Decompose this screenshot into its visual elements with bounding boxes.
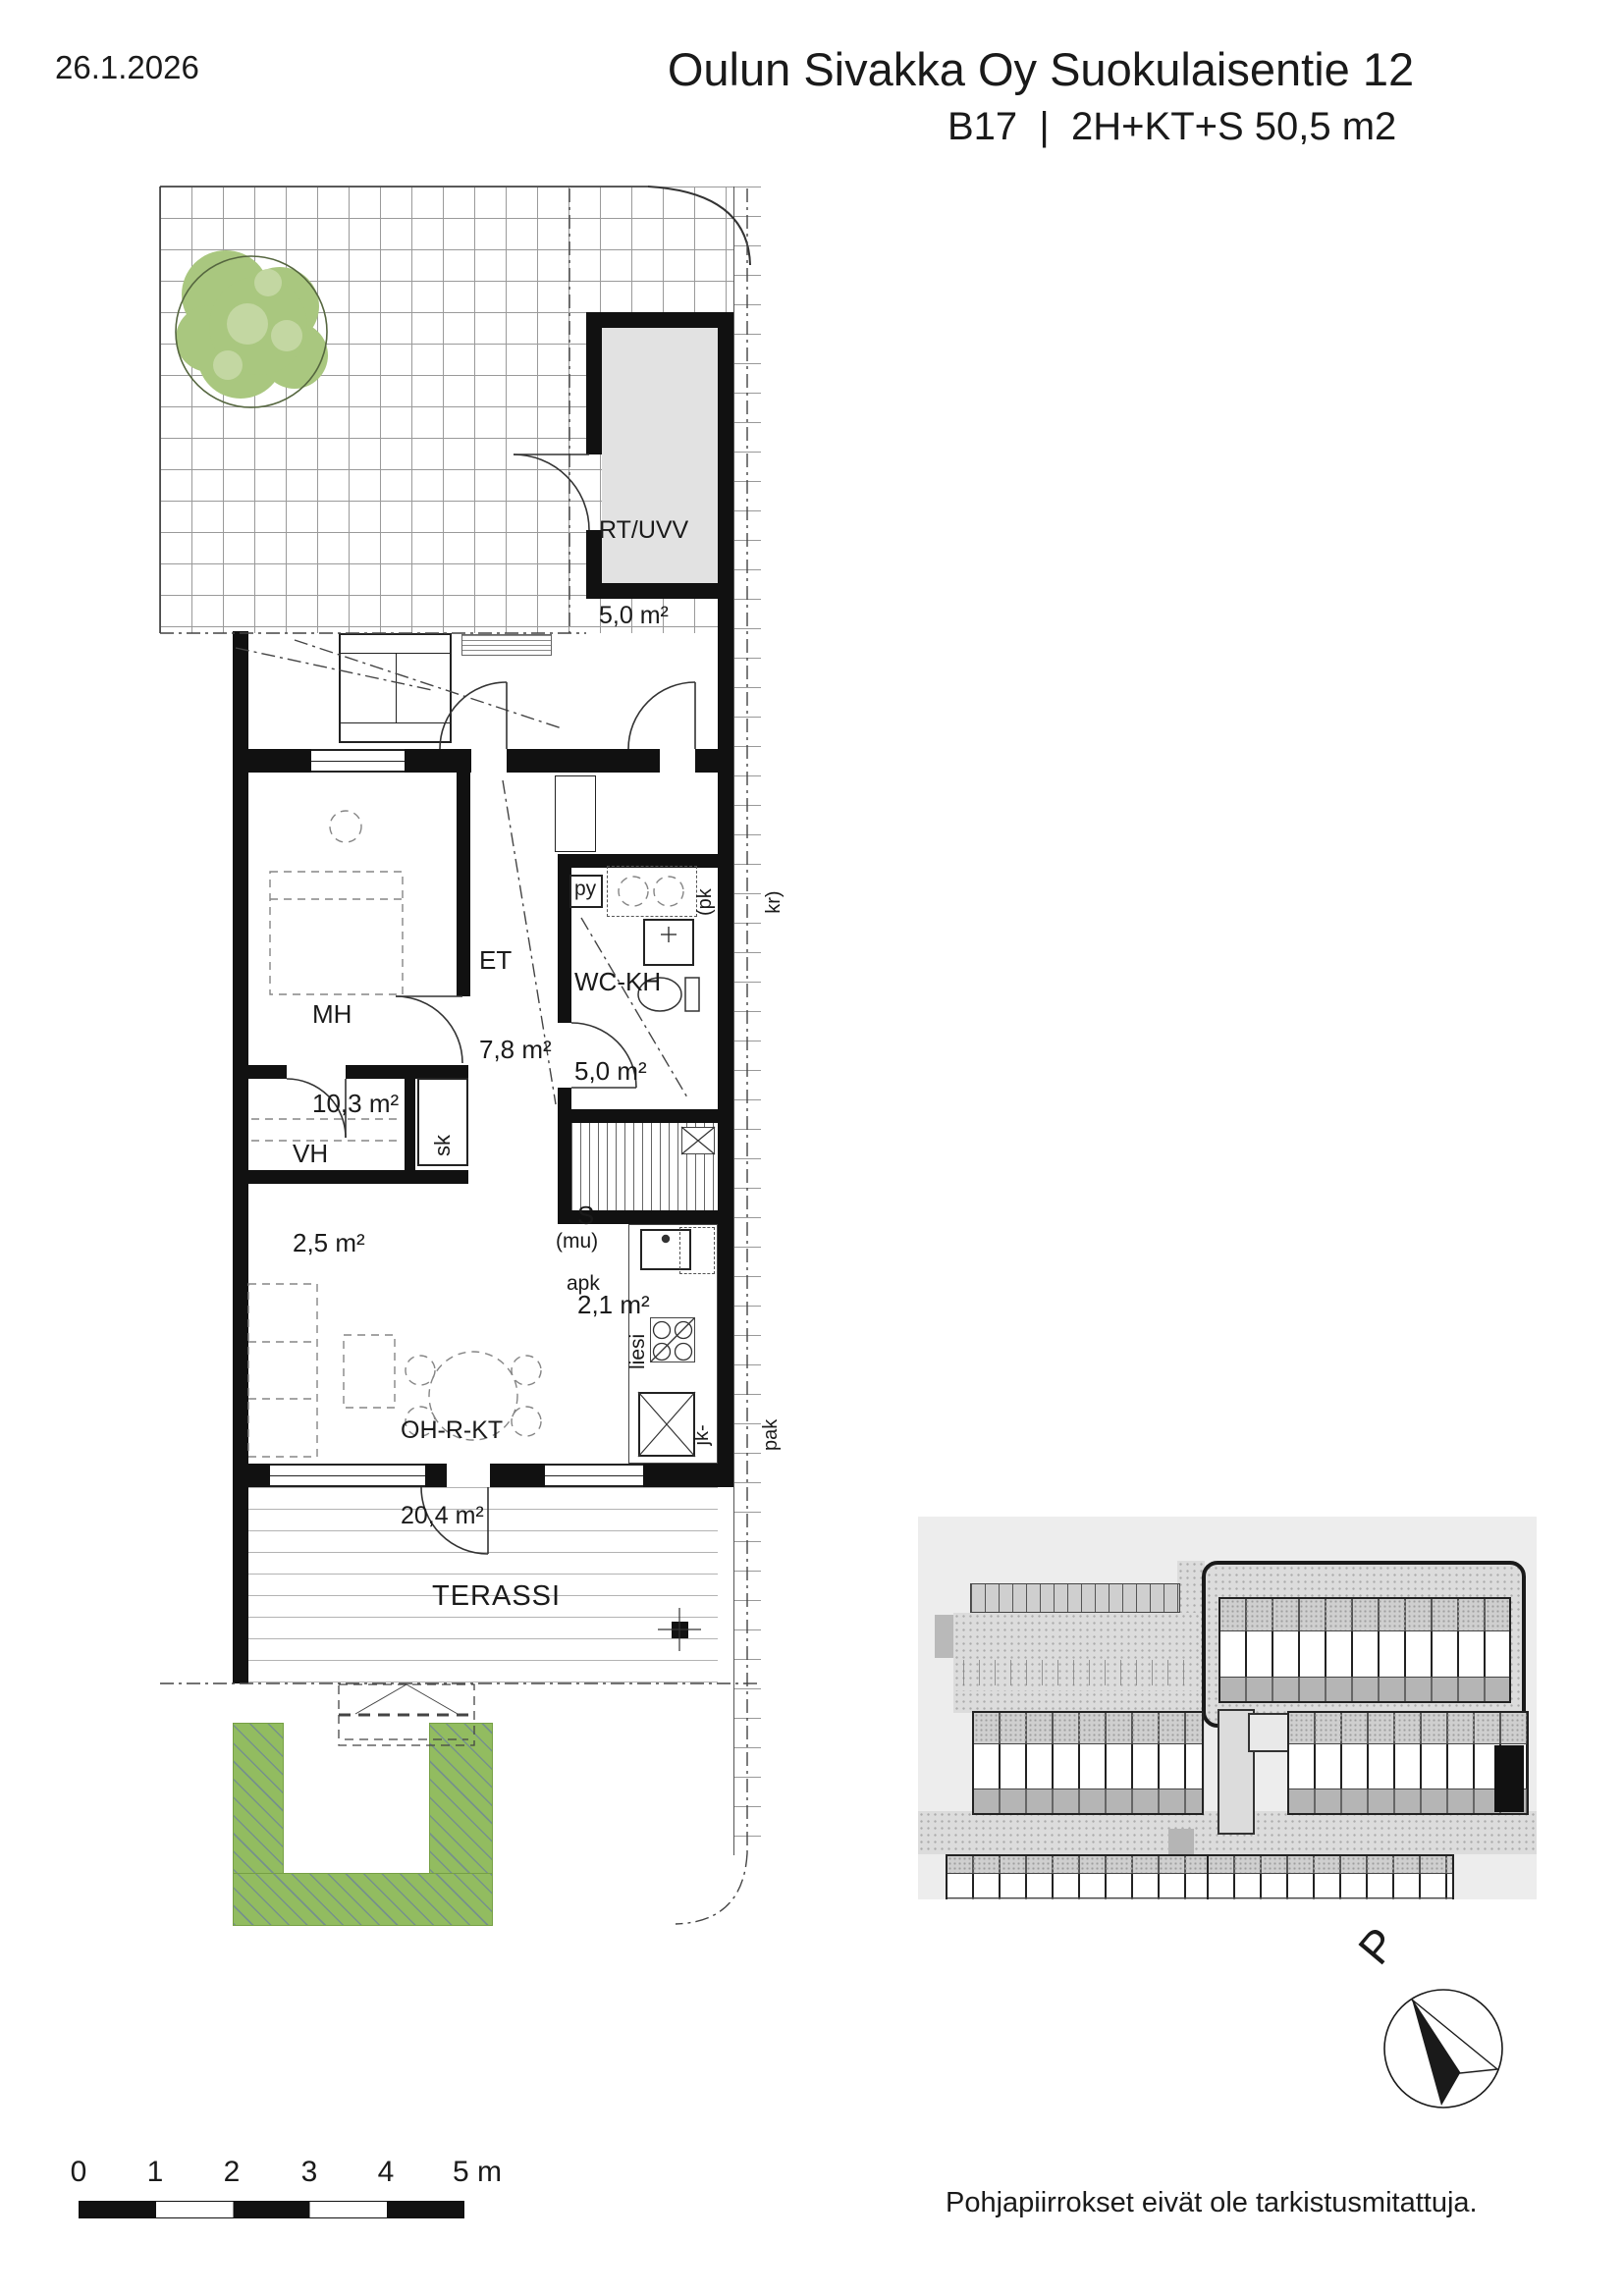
site-row-units	[1289, 1744, 1527, 1789]
window	[311, 749, 405, 773]
door-opening	[471, 749, 507, 773]
site-building-row	[1218, 1597, 1511, 1703]
fixture-label-sk: sk	[430, 1135, 456, 1156]
room-name: VH	[293, 1139, 365, 1168]
site-road	[953, 1691, 1201, 1713]
room-label-rt-uvv: RT/UVV 5,0 m²	[599, 459, 688, 687]
site-row-patios	[974, 1789, 1202, 1813]
site-building	[935, 1615, 953, 1658]
site-building-row	[1207, 1854, 1454, 1899]
room-name: ET	[479, 945, 552, 975]
fixture-label-jk-pak: jk- pak	[646, 1419, 829, 1451]
fixture-label-line: (pk	[694, 888, 717, 916]
room-area: 5,0 m²	[599, 602, 688, 630]
scale-tick: 3	[301, 2156, 318, 2190]
fixture-label-mu: (mu)	[556, 1230, 598, 1254]
wall-segment	[405, 1065, 415, 1184]
wall-segment	[233, 631, 248, 1683]
site-row-yards	[947, 1856, 1217, 1874]
room-name: RT/UVV	[599, 516, 688, 545]
wall-segment	[586, 312, 733, 328]
north-label: P	[1348, 1918, 1408, 1975]
room-area: 20,4 m²	[401, 1502, 503, 1530]
site-row-yards	[1209, 1856, 1452, 1874]
site-row-units	[1209, 1874, 1452, 1897]
site-building-row	[1287, 1711, 1529, 1815]
room-label-oh-r-kt: OH-R-KT 20,4 m²	[401, 1360, 503, 1587]
wall-segment	[718, 312, 733, 599]
site-row-units	[947, 1874, 1217, 1897]
site-row-yards	[974, 1713, 1202, 1744]
fixture-label-line: jk-	[691, 1419, 714, 1451]
site-building-row	[972, 1711, 1204, 1815]
site-parking-ticks	[963, 1660, 1191, 1685]
site-row-patios	[1220, 1677, 1509, 1701]
disclaimer-text: Pohjapiirrokset eivät ole tarkistusmitat…	[946, 2187, 1478, 2220]
room-area: 2,5 m²	[293, 1228, 365, 1257]
wall-segment	[558, 1088, 571, 1224]
room-area: 5,0 m²	[574, 1056, 661, 1086]
scale-bar-ruler	[79, 2201, 464, 2218]
plan-date: 26.1.2026	[55, 49, 199, 86]
fixture-label-pk-kr: (pk kr)	[649, 888, 832, 916]
scale-tick: 1	[147, 2156, 164, 2190]
entry-storage-bench	[339, 633, 452, 743]
room-name: WC-KH	[574, 967, 661, 996]
door-opening	[660, 749, 695, 773]
site-row-patios	[947, 1897, 1217, 1899]
fixture-label-liesi: liesi	[626, 1334, 650, 1369]
scale-tick: 5 m	[453, 2156, 502, 2190]
site-row-patios	[1209, 1897, 1452, 1899]
north-arrow-icon	[1384, 1990, 1502, 2108]
apartment-subtitle: B17 | 2H+KT+S 50,5 m2	[947, 104, 1396, 149]
scale-tick: 0	[71, 2156, 87, 2190]
room-name: MH	[312, 999, 399, 1029]
lawn-strip	[233, 1873, 493, 1926]
scale-bar: 0 1 2 3 4 5 m	[77, 2156, 499, 2224]
sauna-stove	[681, 1127, 715, 1154]
wall-segment	[233, 1065, 287, 1079]
scale-tick: 2	[224, 2156, 241, 2190]
page-title: Oulun Sivakka Oy Suokulaisentie 12	[452, 43, 1624, 97]
fixture-label-py: py	[574, 878, 596, 901]
site-row-yards	[1220, 1599, 1509, 1631]
wall-segment	[457, 773, 470, 996]
terrace-post	[672, 1622, 688, 1638]
site-row-units	[1220, 1631, 1509, 1677]
wardrobe-cabinet	[555, 775, 596, 852]
room-label-wc-kh: WC-KH 5,0 m²	[574, 908, 661, 1145]
fixture-label-line: pak	[760, 1419, 783, 1451]
site-plan	[918, 1517, 1537, 1899]
floor-plan-page: 26.1.2026 Oulun Sivakka Oy Suokulaisenti…	[0, 0, 1624, 2296]
room-name: S	[577, 1201, 650, 1230]
dishwasher-reservation	[679, 1227, 715, 1274]
wall-segment	[586, 312, 602, 454]
room-label-et: ET 7,8 m²	[479, 886, 552, 1123]
room-name: OH-R-KT	[401, 1416, 503, 1445]
stove	[650, 1317, 695, 1362]
scale-tick: 4	[378, 2156, 395, 2190]
entry-doormat	[461, 634, 552, 656]
site-row-units	[974, 1744, 1202, 1789]
room-label-terassi: TERASSI	[432, 1580, 561, 1614]
window	[545, 1464, 643, 1487]
wall-segment	[718, 599, 733, 1487]
fixture-label-line: kr)	[763, 888, 785, 916]
site-row-yards	[1289, 1713, 1527, 1744]
neighbour-strip	[733, 187, 761, 1855]
room-label-vh: VH 2,5 m²	[293, 1080, 365, 1316]
fixture-label-apk: apk	[567, 1272, 600, 1296]
site-building-row	[946, 1854, 1218, 1899]
room-area: 7,8 m²	[479, 1035, 552, 1064]
site-highlighted-unit	[1494, 1745, 1524, 1812]
site-row-patios	[1289, 1789, 1527, 1813]
site-parking-stalls	[970, 1583, 1180, 1613]
